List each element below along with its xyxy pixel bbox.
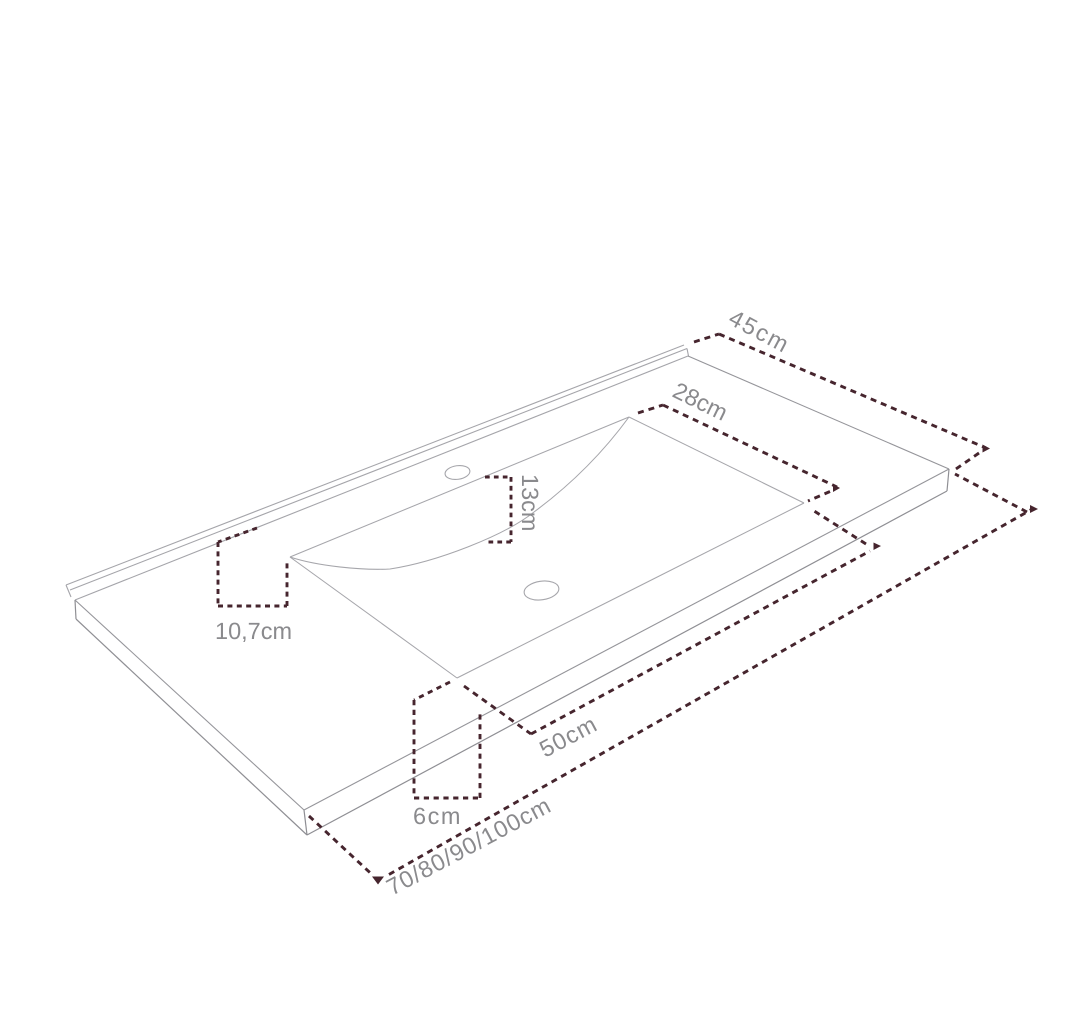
svg-text:6cm: 6cm [413,803,462,829]
svg-text:10,7cm: 10,7cm [215,618,292,644]
svg-text:13cm: 13cm [517,474,543,531]
